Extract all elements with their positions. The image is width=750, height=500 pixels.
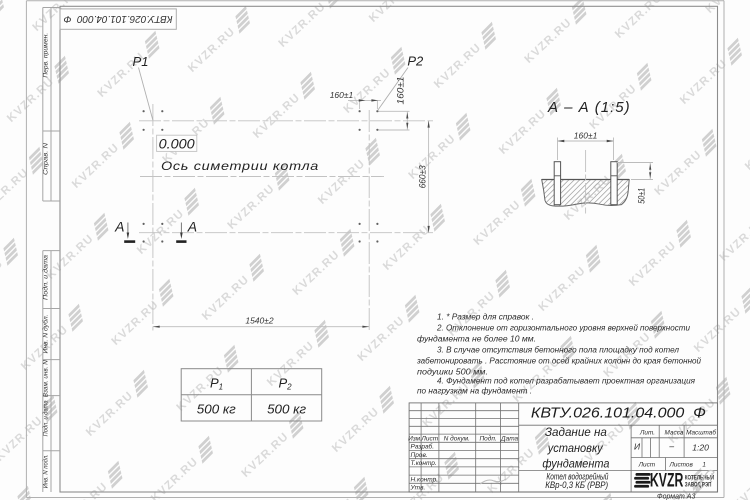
svg-text:Перв. примен.: Перв. примен. xyxy=(43,33,50,78)
svg-text:KVZR.RU: KVZR.RU xyxy=(381,223,433,272)
svg-text:Лит.: Лит. xyxy=(639,430,655,437)
svg-text:Разраб.: Разраб. xyxy=(411,443,435,451)
svg-text:Подп. и дата: Подп. и дата xyxy=(42,400,50,436)
svg-text:KVZR.RU: KVZR.RU xyxy=(200,273,252,322)
svg-text:KVZR.RU: KVZR.RU xyxy=(0,414,45,463)
svg-text:KVZR.RU: KVZR.RU xyxy=(0,257,6,306)
svg-text:N докум.: N докум. xyxy=(444,434,470,442)
svg-text:KVZR.RU: KVZR.RU xyxy=(432,41,484,90)
svg-text:KVZR.RU: KVZR.RU xyxy=(678,57,730,106)
svg-text:КВТУ.026.101.04.000 Ф: КВТУ.026.101.04.000 Ф xyxy=(63,13,172,24)
svg-text:Взам. инв. N: Взам. инв. N xyxy=(43,360,50,397)
svg-text:KVZR.RU: KVZR.RU xyxy=(316,157,368,206)
svg-text:–: – xyxy=(668,441,674,451)
svg-text:Ось симетрии котла: Ось симетрии котла xyxy=(161,159,319,173)
svg-text:А: А xyxy=(114,218,124,234)
svg-text:KVZR.RU: KVZR.RU xyxy=(5,75,57,124)
svg-text:160±1: 160±1 xyxy=(330,90,354,100)
svg-text:Т.контр.: Т.контр. xyxy=(411,460,437,467)
svg-text:KVZR.RU: KVZR.RU xyxy=(45,232,97,281)
svg-text:забетонировать . Расстояние: забетонировать . Расстояние от осей край… xyxy=(416,357,702,366)
svg-text:1. * Размер для справок .: 1. * Размер для справок . xyxy=(437,313,534,322)
svg-text:Инв. N дубл.: Инв. N дубл. xyxy=(42,315,50,354)
svg-text:KVZR.RU: KVZR.RU xyxy=(486,446,538,495)
svg-text:Пров.: Пров. xyxy=(411,452,428,459)
svg-text:KVZR.RU: KVZR.RU xyxy=(718,214,750,263)
svg-text:Формат А3: Формат А3 xyxy=(657,494,695,500)
svg-text:KVZR.RU: KVZR.RU xyxy=(367,0,419,25)
svg-text:И: И xyxy=(634,442,641,452)
svg-text:KVZR.RU: KVZR.RU xyxy=(537,264,589,313)
svg-text:Изм.: Изм. xyxy=(408,435,422,442)
svg-text:установку: установку xyxy=(547,441,604,455)
svg-text:по нагрузкам на фундамент .: по нагрузкам на фундамент . xyxy=(417,387,532,396)
svg-text:фундамента не более 10 мм.: фундамента не более 10 мм. xyxy=(417,335,536,344)
svg-text:KVZR.RU: KVZR.RU xyxy=(186,25,238,74)
svg-text:Масса: Масса xyxy=(665,430,684,437)
svg-text:КВр-0,3 КБ (РВР): КВр-0,3 КБ (РВР) xyxy=(545,480,608,490)
svg-text:160±1: 160±1 xyxy=(395,76,405,104)
svg-text:KVZR.RU: KVZR.RU xyxy=(305,496,357,500)
svg-text:подушки 500 мм.: подушки 500 мм. xyxy=(417,368,488,377)
svg-text:KVZR.RU: KVZR.RU xyxy=(627,239,679,288)
svg-text:KVZR: KVZR xyxy=(650,470,684,492)
svg-text:50±1: 50±1 xyxy=(637,188,647,204)
svg-text:KVZR.RU: KVZR.RU xyxy=(356,314,408,363)
svg-text:KVZR.RU: KVZR.RU xyxy=(70,141,122,190)
svg-text:1:20: 1:20 xyxy=(692,442,709,452)
svg-text:Задание на: Задание на xyxy=(545,425,607,439)
svg-text:KVZR.RU: KVZR.RU xyxy=(743,123,750,172)
svg-text:0.000: 0.000 xyxy=(159,137,195,153)
svg-text:P2: P2 xyxy=(279,376,293,392)
svg-text:KVZR.RU: KVZR.RU xyxy=(84,389,136,438)
svg-text:KVZR.RU: KVZR.RU xyxy=(291,248,343,297)
svg-text:500 кг: 500 кг xyxy=(197,401,237,416)
svg-text:KVZR.RU: KVZR.RU xyxy=(135,207,187,256)
svg-text:KVZR.RU: KVZR.RU xyxy=(265,339,317,388)
svg-text:KVZR.RU: KVZR.RU xyxy=(602,330,654,379)
svg-text:Утв.: Утв. xyxy=(410,485,426,492)
svg-text:KVZR.RU: KVZR.RU xyxy=(277,0,329,49)
svg-text:Подп.: Подп. xyxy=(479,434,496,442)
svg-text:KVZR.RU: KVZR.RU xyxy=(407,132,459,181)
svg-text:Н.контр.: Н.контр. xyxy=(411,476,439,483)
svg-text:KVZR.RU: KVZR.RU xyxy=(653,148,705,197)
svg-text:КВТУ.026.101.04.000 Ф: КВТУ.026.101.04.000 Ф xyxy=(531,405,706,422)
svg-text:KVZR.RU: KVZR.RU xyxy=(704,0,750,16)
svg-text:Листов: Листов xyxy=(669,462,694,469)
svg-text:Лист: Лист xyxy=(420,435,438,442)
svg-text:А: А xyxy=(187,218,197,234)
svg-text:Дата: Дата xyxy=(500,435,519,442)
svg-text:Инв. N подл.: Инв. N подл. xyxy=(42,454,50,488)
svg-text:Масштаб: Масштаб xyxy=(686,429,716,437)
svg-text:KVZR.RU: KVZR.RU xyxy=(149,455,201,500)
svg-text:фундамента: фундамента xyxy=(542,457,609,471)
svg-text:Подп. и дата: Подп. и дата xyxy=(42,255,50,300)
svg-text:KVZR.RU: KVZR.RU xyxy=(732,462,750,500)
svg-text:3. В случае отсутствия бет: 3. В случае отсутствия бетонного пола пл… xyxy=(437,346,679,355)
svg-text:Лист: Лист xyxy=(638,462,656,469)
svg-text:KVZR.RU: KVZR.RU xyxy=(497,107,549,156)
svg-text:P1: P1 xyxy=(133,54,149,69)
svg-text:А – А (1:5): А – А (1:5) xyxy=(547,99,631,116)
svg-text:КОТЕЛЬНЫЙ: КОТЕЛЬНЫЙ xyxy=(685,473,714,482)
svg-text:1540±2: 1540±2 xyxy=(245,316,274,326)
svg-text:660±3: 660±3 xyxy=(418,165,428,189)
svg-text:4. Фундамент под котел раз: 4. Фундамент под котел разрабатывает про… xyxy=(437,377,696,386)
svg-text:2. Отклонение от горизонталь: 2. Отклонение от горизонтального уровня … xyxy=(436,324,691,333)
svg-text:KVZR.RU: KVZR.RU xyxy=(523,16,575,65)
svg-text:KVZR.RU: KVZR.RU xyxy=(251,91,303,140)
svg-text:500 кг: 500 кг xyxy=(267,401,307,416)
svg-text:Справ. N: Справ. N xyxy=(43,143,50,175)
svg-text:1: 1 xyxy=(702,462,706,469)
svg-text:KVZR.RU: KVZR.RU xyxy=(240,430,292,479)
svg-text:KVZR.RU: KVZR.RU xyxy=(330,405,382,454)
svg-text:KVZR.RU: KVZR.RU xyxy=(472,198,524,247)
svg-text:P2: P2 xyxy=(407,54,424,69)
svg-text:160±1: 160±1 xyxy=(574,130,598,140)
svg-text:KVZR.RU: KVZR.RU xyxy=(110,298,162,347)
svg-text:KVZR.RU: KVZR.RU xyxy=(226,182,278,231)
